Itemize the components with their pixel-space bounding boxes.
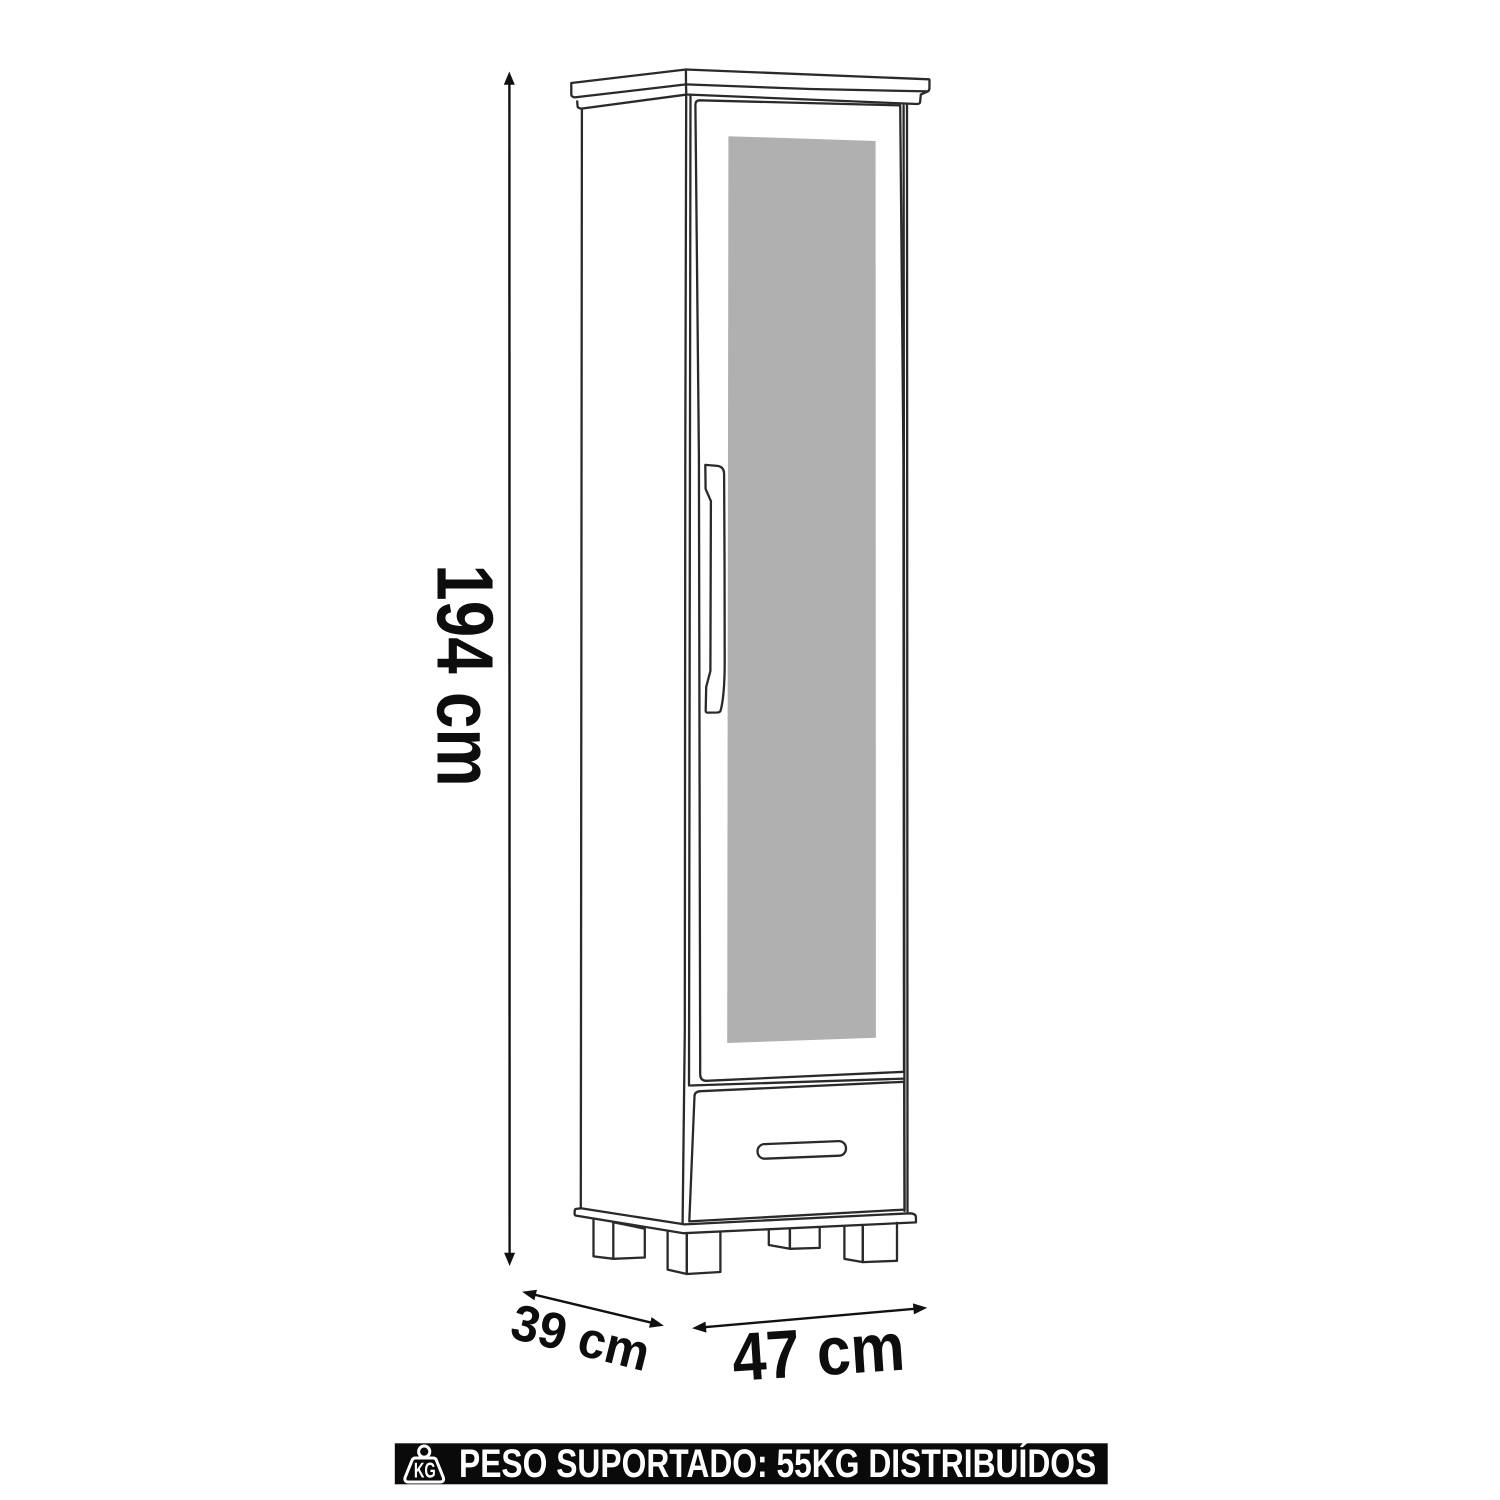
- svg-text:KG: KG: [414, 1459, 436, 1483]
- svg-text:194 cm: 194 cm: [421, 564, 510, 786]
- svg-text:PESO SUPORTADO: 55KG DISTRIBUÍ: PESO SUPORTADO: 55KG DISTRIBUÍDOS: [459, 1441, 1096, 1486]
- svg-text:47 cm: 47 cm: [730, 1309, 907, 1396]
